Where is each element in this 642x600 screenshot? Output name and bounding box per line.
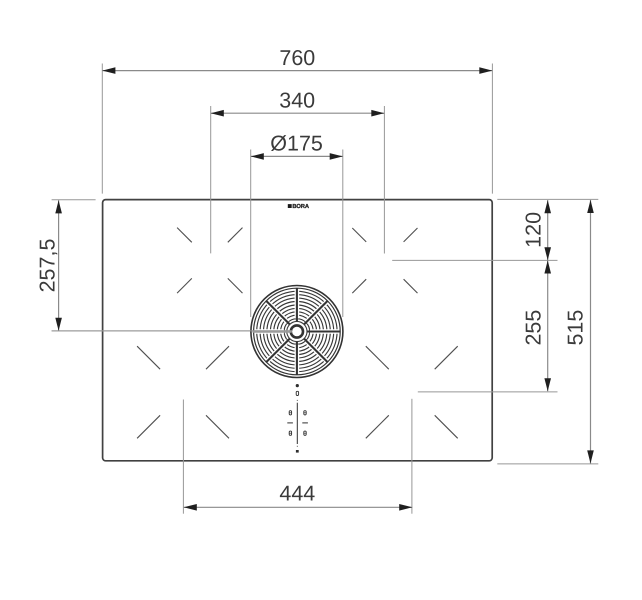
svg-text:120: 120	[521, 212, 545, 248]
svg-text:255: 255	[521, 310, 545, 346]
svg-text:515: 515	[564, 310, 588, 346]
svg-text:257,5: 257,5	[35, 239, 59, 293]
svg-text:444: 444	[279, 481, 315, 505]
svg-text:340: 340	[279, 88, 315, 112]
svg-text:Ø175: Ø175	[270, 132, 323, 156]
svg-text:760: 760	[279, 46, 315, 70]
svg-text:BORA: BORA	[292, 203, 309, 210]
